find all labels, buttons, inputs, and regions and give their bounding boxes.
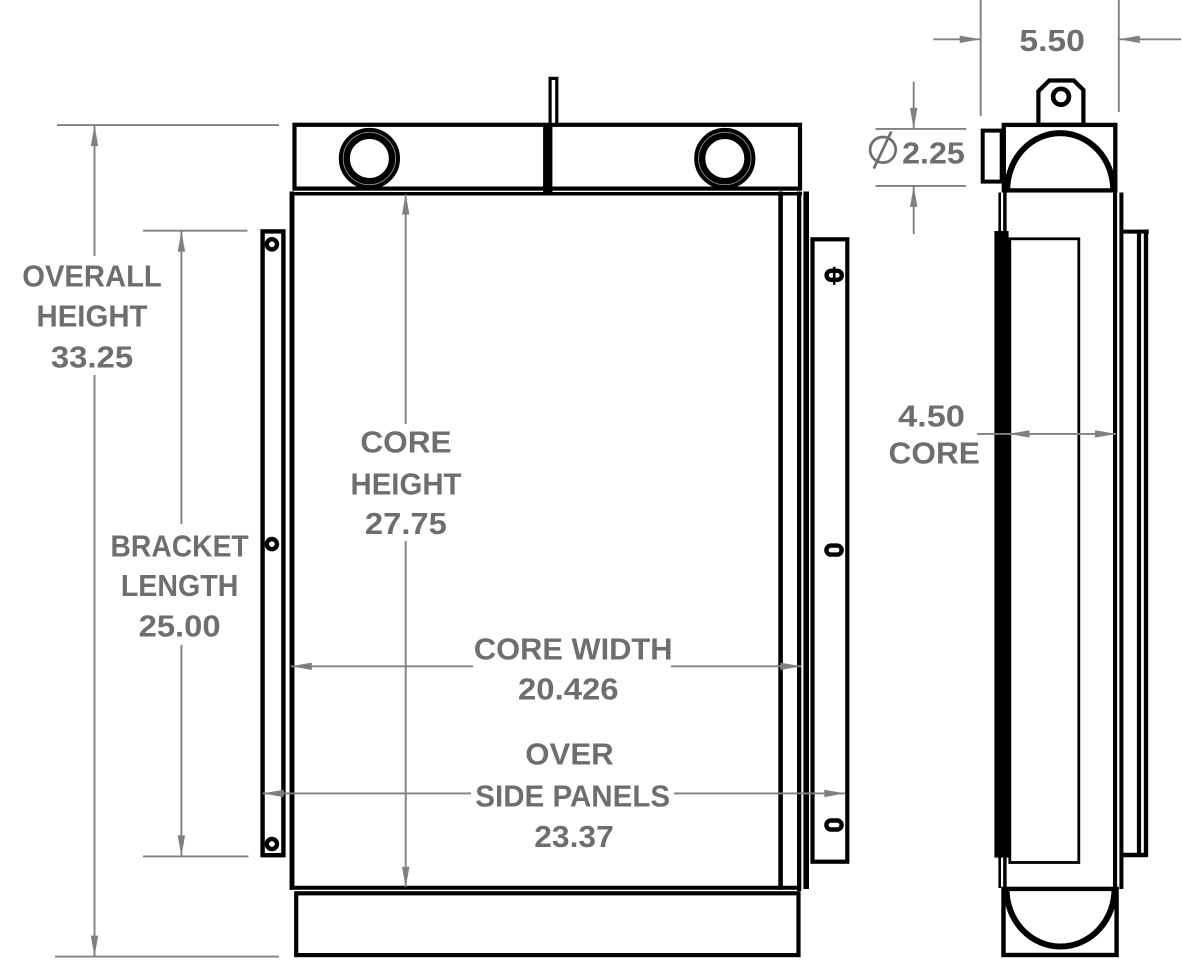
svg-text:CORE: CORE xyxy=(889,436,980,471)
svg-text:20.426: 20.426 xyxy=(518,672,619,707)
svg-text:LENGTH: LENGTH xyxy=(121,568,239,603)
svg-text:CORE WIDTH: CORE WIDTH xyxy=(474,632,673,667)
svg-text:25.00: 25.00 xyxy=(139,609,221,644)
svg-text:OVER: OVER xyxy=(525,736,613,771)
svg-text:HEIGHT: HEIGHT xyxy=(37,298,148,333)
svg-text:4.50: 4.50 xyxy=(898,399,965,434)
svg-text:33.25: 33.25 xyxy=(51,339,133,374)
svg-text:5.50: 5.50 xyxy=(1019,23,1084,58)
svg-text:27.75: 27.75 xyxy=(365,506,447,541)
svg-text:CORE: CORE xyxy=(360,424,451,459)
svg-text:23.37: 23.37 xyxy=(534,819,614,854)
svg-text:SIDE PANELS: SIDE PANELS xyxy=(475,779,670,814)
svg-text:BRACKET: BRACKET xyxy=(111,528,249,563)
svg-text:OVERALL: OVERALL xyxy=(22,259,162,294)
svg-text:HEIGHT: HEIGHT xyxy=(351,466,462,501)
svg-text:2.25: 2.25 xyxy=(902,135,965,170)
